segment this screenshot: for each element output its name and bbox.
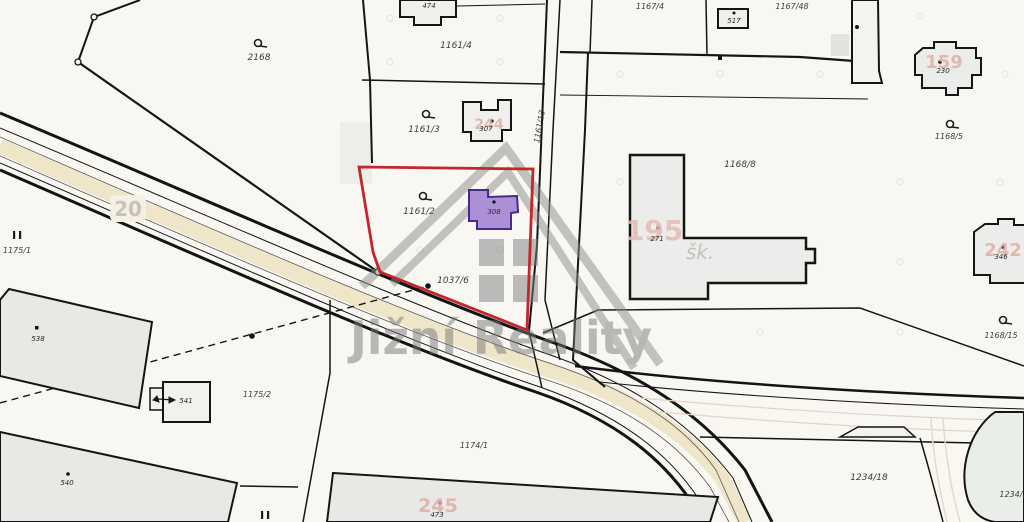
- parcel-label-1161-2: 1161/2: [403, 207, 435, 217]
- parcel-label-1161-3: 1161/3: [408, 125, 440, 135]
- boundary-bottom-small: [240, 486, 298, 487]
- parcel-label-1167-4: 1167/4: [636, 2, 664, 11]
- boundary-1167-divider: [706, 0, 707, 55]
- cadastral-map[interactable]: 20 Jižní Reality 2168 474 1161/4 1167/4 …: [0, 0, 1024, 522]
- building-308-dot: [492, 200, 495, 203]
- building-label-540: 540: [60, 479, 74, 487]
- road-shield-number: 20: [114, 197, 142, 221]
- school-use-label: šk.: [686, 240, 714, 264]
- building-label-473: 473: [430, 511, 443, 519]
- parcel-label-1168-8: 1168/8: [724, 160, 756, 170]
- parcel-label-1168-5: 1168/5: [935, 132, 963, 141]
- building-label-474: 474: [422, 2, 435, 10]
- parcel-label-1175-1: 1175/1: [3, 246, 31, 255]
- road-shield: 20: [110, 195, 146, 222]
- gray-annex-block: [831, 34, 849, 56]
- map-canvas[interactable]: 20 Jižní Reality 2168 474 1161/4 1167/4 …: [0, 0, 1024, 522]
- building-label-308: 308: [487, 208, 501, 216]
- dashed-line-dot: [249, 333, 255, 339]
- parcel-label-1161-4: 1161/4: [440, 41, 472, 51]
- parcel-label-1234-16: 1234/16: [999, 490, 1024, 499]
- parcel-1037-6-dot: [425, 283, 431, 289]
- parcel-label-2168: 2168: [248, 53, 271, 63]
- parcel-label-1174-1: 1174/1: [460, 441, 488, 450]
- building-label-230: 230: [936, 67, 950, 75]
- parcel-label-1168-15: 1168/15: [984, 331, 1017, 340]
- building-label-541: 541: [179, 397, 192, 405]
- parcel-label-1234-18: 1234/18: [850, 473, 888, 483]
- building-label-271: 271: [650, 235, 663, 243]
- building-north-strip: [852, 0, 882, 83]
- building-label-517: 517: [727, 17, 741, 25]
- building-label-346: 346: [994, 253, 1008, 261]
- parcel-label-1175-2: 1175/2: [243, 390, 271, 399]
- building-label-538: 538: [31, 335, 45, 343]
- building-label-307: 307: [479, 125, 493, 133]
- parcel-shading-patch: [340, 122, 372, 184]
- parcel-label-1167-48: 1167/48: [775, 2, 808, 11]
- parcel-label-1037-6: 1037/6: [437, 276, 469, 286]
